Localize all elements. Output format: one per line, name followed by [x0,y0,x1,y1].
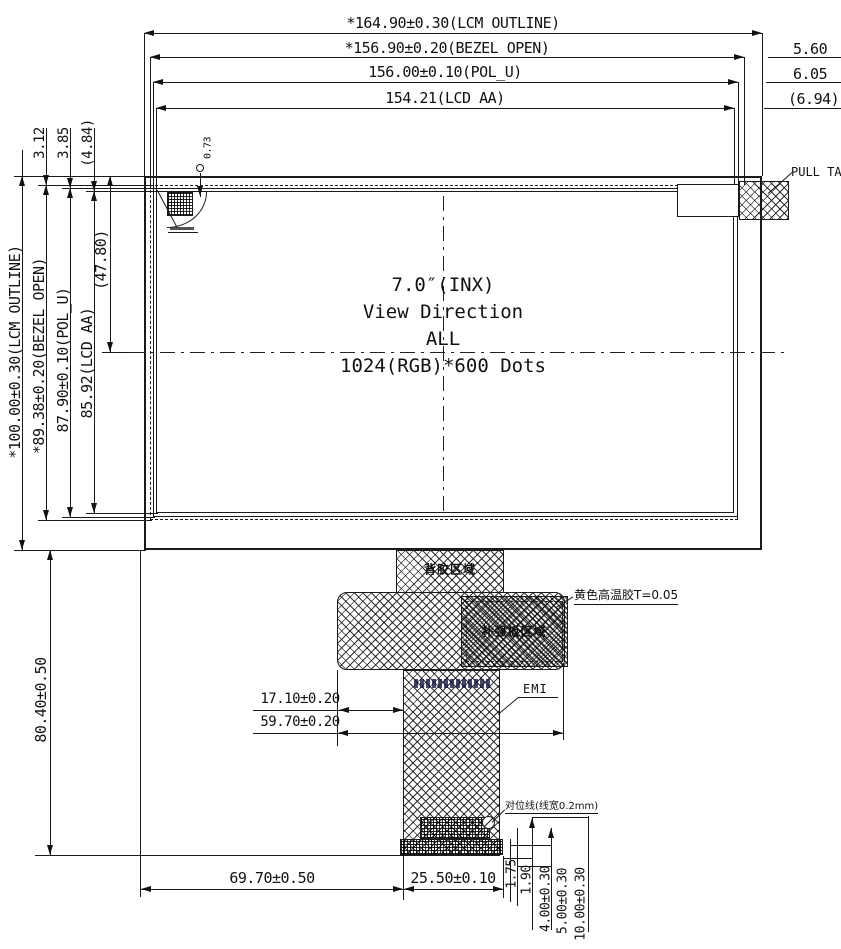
arrow [144,30,154,36]
arrow [734,54,744,60]
arrow [67,178,73,188]
datum-circle [196,164,204,172]
dim-lcd-aa-height: 85.92(LCD AA) [78,308,96,419]
leader-line [498,697,519,715]
dim-line [156,108,734,109]
dim-top-offset-1: 3.12 [32,127,48,159]
dim-lcd-aa-width: 154.21(LCD AA) [385,89,504,107]
ext-line [62,517,155,518]
fpc-region-stiffener-label: 补强板区域 [481,623,546,640]
ext-line [14,176,146,177]
dim-line [150,57,744,58]
arrow [752,30,762,36]
arrow [153,79,163,85]
dim-line [110,176,111,352]
dim-bezel-open-height: *89.38±0.20(BEZEL OPEN) [30,258,48,454]
dim-line [144,33,762,34]
dim-line [153,82,738,83]
ext-line [403,856,404,900]
arrow [91,181,97,191]
dim-small-4: 5.00±0.30 [556,868,571,934]
arrow [19,540,25,550]
dim-right-offset-3: (6.94) [788,90,839,108]
arrow [393,707,403,713]
arrow [548,828,554,838]
dim-line [510,845,551,846]
pull-tape-window [677,184,739,217]
dim-small-3: 4.00±0.30 [539,866,554,932]
arrow [197,186,203,196]
ext-line [337,670,338,746]
ext-line [14,550,146,551]
ext-line [738,82,739,188]
alignment-line-label: 对位线(线宽0.2mm) [505,797,598,814]
arrow [47,550,53,560]
arrow [19,176,25,186]
arrow [47,845,53,855]
view-direction-label: View Direction [340,299,546,326]
fpc-region-top-label: 背胶区域 [424,561,476,578]
arrow [91,503,97,513]
ext-line [744,57,745,185]
lcm-mechanical-drawing: *164.90±0.30(LCM OUTLINE) *156.90±0.20(B… [0,0,841,949]
dim-bottom-left-span: 69.70±0.50 [229,869,314,887]
underline [518,697,558,698]
dim-pol-width: 156.00±0.10(POL_U) [368,63,522,81]
dim-line [764,108,841,109]
dim-line [140,889,503,890]
underline [168,232,198,233]
dim-fpc-length: 80.40±0.50 [32,657,50,742]
dim-line [50,550,51,855]
ext-line [532,817,588,818]
dim-pol-height: 87.90±0.10(POL_U) [54,287,72,432]
dim-right-offset-2: 6.05 [793,65,827,83]
dim-tail-width: 25.50±0.10 [410,869,495,887]
arrow [43,185,49,195]
pull-tape-hatch [739,181,789,220]
view-direction-value: ALL [340,326,546,353]
arrow [393,886,403,892]
ext-line [140,550,141,897]
ext-line [150,57,151,185]
panel-size-text: 7.0″(INX) [340,272,546,299]
ext-line [22,150,23,176]
emi-label: EMI [523,682,548,696]
ext-line [563,667,564,740]
ext-line [153,82,154,188]
ext-line [144,33,145,176]
dim-fpc-offset: 17.10±0.20 [260,691,339,707]
fpc-marking [414,679,490,688]
underline [253,710,345,711]
ext-line [35,855,403,856]
arrow [338,730,348,736]
connector-inner-grid [420,817,490,839]
connector-bar [400,839,503,855]
arrow [67,507,73,517]
arrow [107,342,113,352]
ext-line [762,33,763,176]
tiny-marking [170,227,194,230]
dim-bezel-open-width: *156.90±0.20(BEZEL OPEN) [345,39,550,57]
arrow [728,79,738,85]
dim-fpc-width: 59.70±0.20 [260,714,339,730]
arrow [529,818,535,828]
arrow [724,105,734,111]
dim-small-2: 1.90 [520,865,535,894]
arrow [339,707,349,713]
dim-lcm-outline-width: *164.90±0.30(LCM OUTLINE) [346,14,559,32]
panel-annotation: 7.0″(INX) View Direction ALL 1024(RGB)*6… [340,272,546,380]
ext-line [62,188,155,189]
arrow [43,510,49,520]
arrow [150,54,160,60]
dim-line [345,733,563,734]
dim-top-offset-3: (4.84) [80,119,96,167]
resolution-text: 1024(RGB)*600 Dots [340,353,546,380]
dim-small-1: 1.75 [505,859,520,888]
ext-line [38,520,152,521]
pull-tape-label: PULL TAPE [791,165,841,179]
underline [253,733,345,734]
dim-top-offset-2: 3.85 [56,127,72,159]
dim-lcm-outline-height: *100.00±0.30(LCM OUTLINE) [6,245,24,458]
dim-wire: 0.73 [203,137,214,159]
arrow [43,175,49,185]
dim-center-offset: (47.80) [92,230,110,290]
dim-small-5: 10.00±0.30 [574,867,589,940]
arrow [141,886,151,892]
arrow [553,730,563,736]
yellow-tape-label: 黄色高温胶T=0.05 [574,586,678,605]
dim-right-offset-1: 5.60 [793,40,827,58]
arrow [156,105,166,111]
